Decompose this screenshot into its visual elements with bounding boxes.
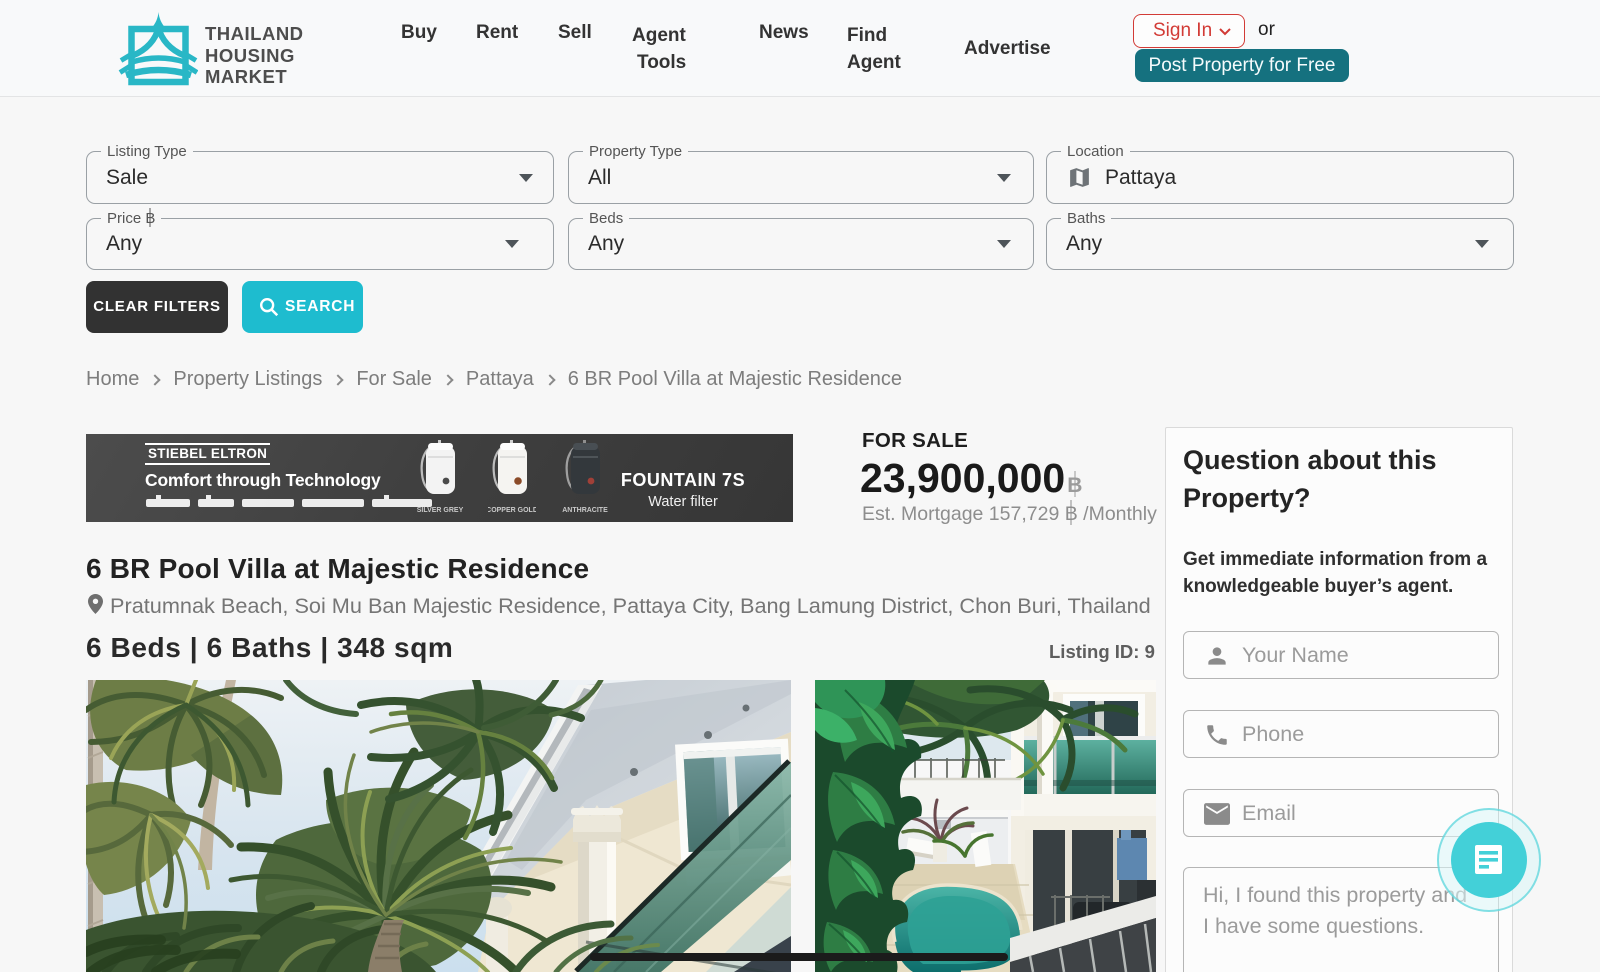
svg-text:ANTHRACITE: ANTHRACITE: [562, 507, 608, 514]
svg-text:COPPER GOLD: COPPER GOLD: [488, 507, 536, 514]
svg-text:SILVER GREY: SILVER GREY: [417, 507, 464, 514]
